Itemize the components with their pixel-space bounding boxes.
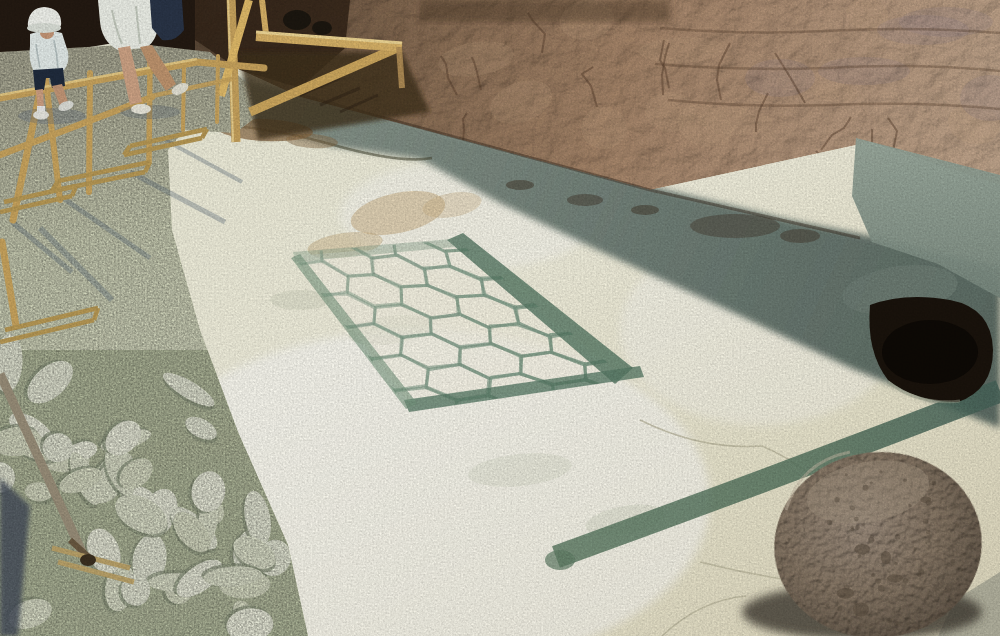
photo-grain <box>0 0 1000 636</box>
site-photo <box>0 0 1000 636</box>
site-photo-canvas <box>0 0 1000 636</box>
